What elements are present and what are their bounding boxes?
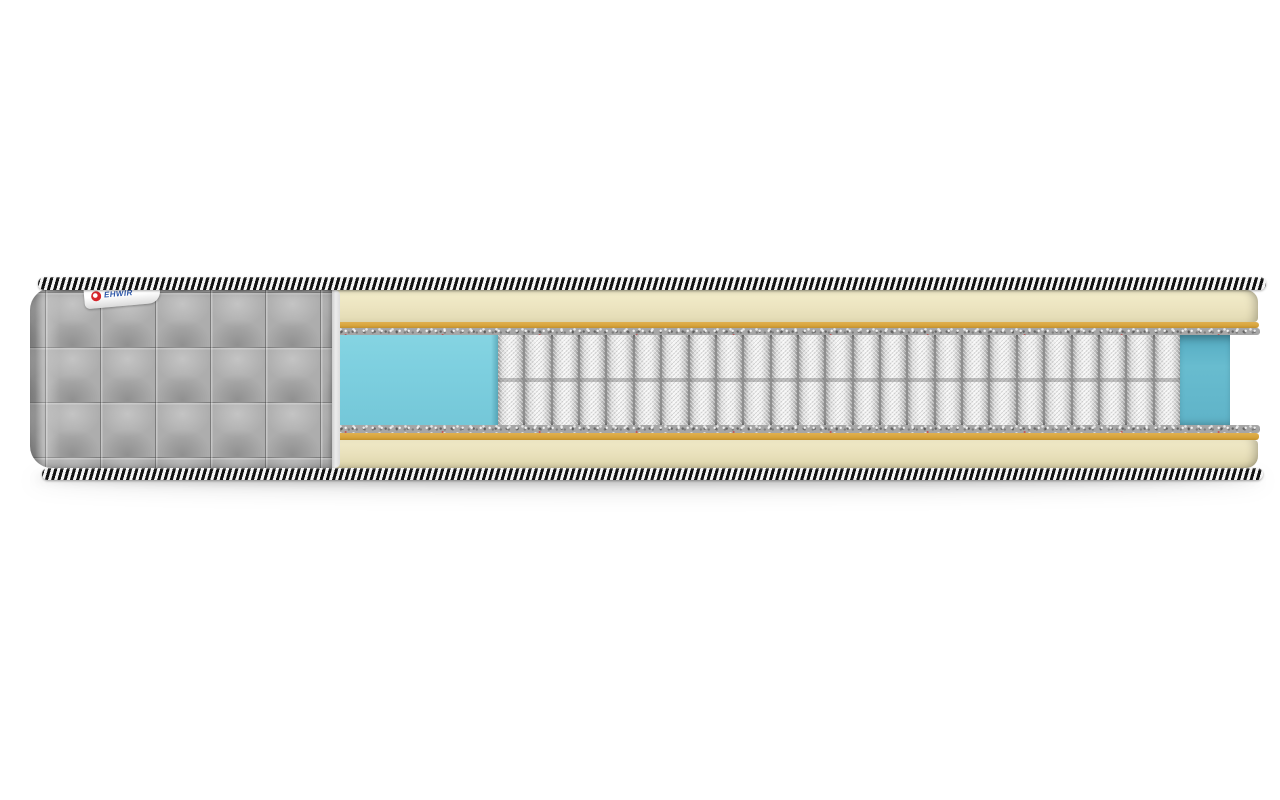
pocket-spring <box>1018 335 1043 425</box>
pocket-spring <box>607 335 632 425</box>
bottom-felt-layer <box>334 425 1260 433</box>
bottom-foam-layer <box>334 440 1258 468</box>
pocket-spring <box>799 335 824 425</box>
pocket-spring <box>936 335 961 425</box>
pocket-spring <box>908 335 933 425</box>
pocket-spring <box>1100 335 1125 425</box>
pocket-spring <box>1155 335 1180 425</box>
pocket-spring <box>525 335 550 425</box>
bottom-border-piping <box>42 468 1263 480</box>
pocket-spring <box>635 335 660 425</box>
pocket-spring <box>826 335 851 425</box>
back-wall-foam <box>1180 335 1230 425</box>
pocket-spring-unit <box>498 335 1180 425</box>
bottom-latex-layer <box>334 433 1259 440</box>
pocket-spring <box>744 335 769 425</box>
pocket-spring <box>553 335 578 425</box>
pocket-spring <box>580 335 605 425</box>
quilted-cover <box>30 288 332 468</box>
pocket-spring <box>881 335 906 425</box>
top-felt-layer <box>334 328 1260 335</box>
mattress-cutaway-scene: EHWIR <box>0 0 1280 800</box>
comfort-foam-block <box>337 335 498 426</box>
pocket-spring <box>717 335 742 425</box>
pocket-spring <box>854 335 879 425</box>
pocket-spring <box>498 335 523 425</box>
brand-logo-icon <box>91 290 102 301</box>
top-foam-layer <box>334 290 1258 322</box>
top-border-piping <box>38 277 1266 290</box>
pocket-spring <box>772 335 797 425</box>
pocket-spring <box>1127 335 1152 425</box>
pocket-spring <box>662 335 687 425</box>
pocket-spring <box>1073 335 1098 425</box>
pocket-spring <box>990 335 1015 425</box>
pocket-spring <box>963 335 988 425</box>
pocket-spring <box>690 335 715 425</box>
pocket-spring <box>1045 335 1070 425</box>
